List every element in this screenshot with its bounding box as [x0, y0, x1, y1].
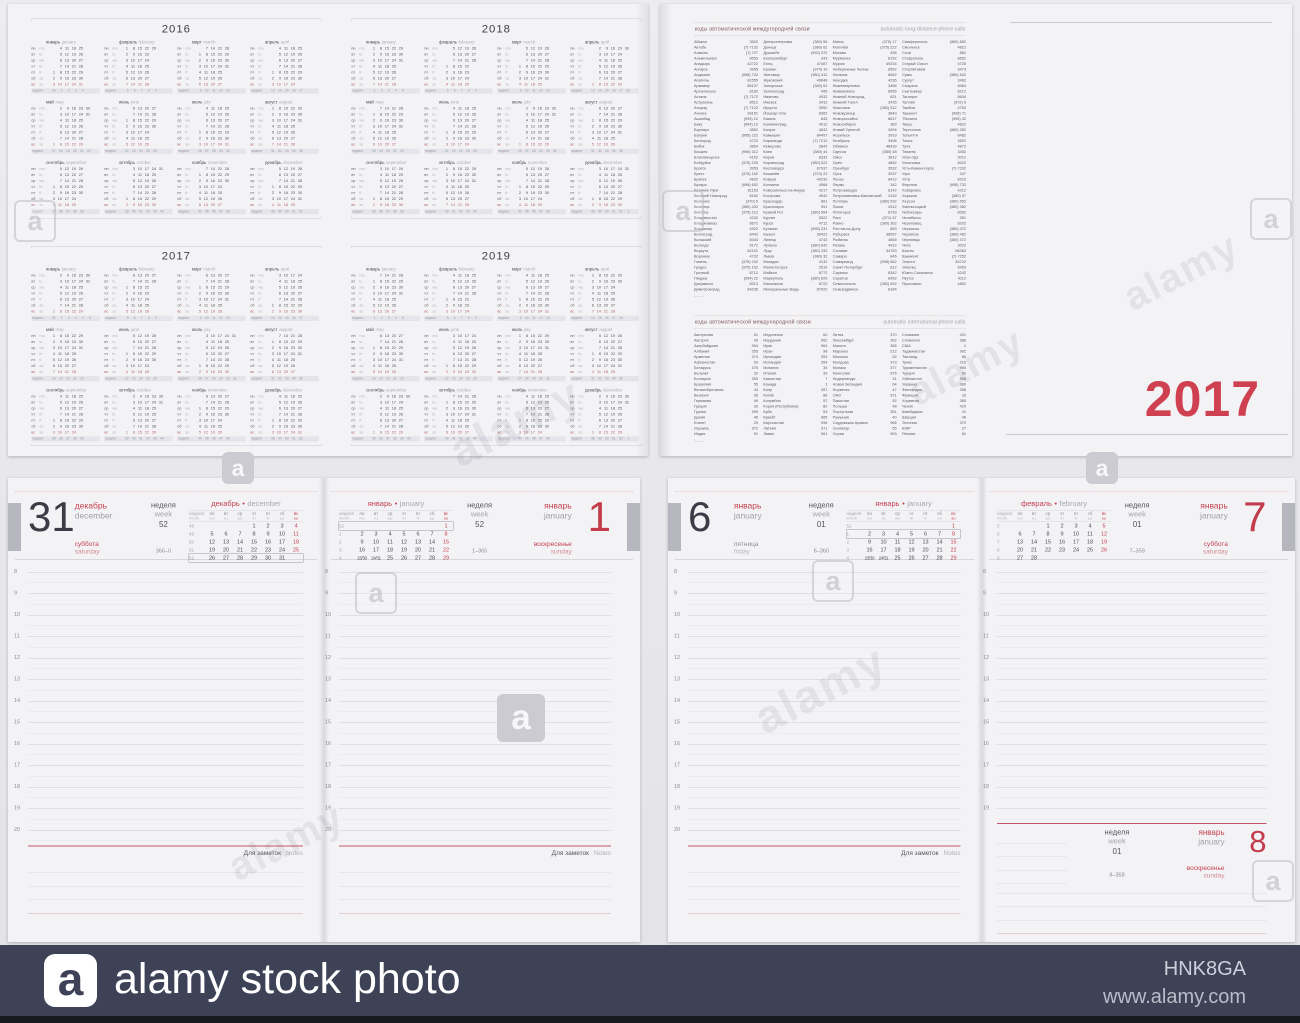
date-cell: 21 [425, 547, 439, 553]
week-block: неделяweek017–359 [1111, 497, 1163, 555]
hour-slot: 20 [688, 823, 961, 845]
hour-line [688, 615, 961, 616]
half-hour-line [339, 626, 611, 627]
hour-label: 11 [325, 633, 336, 639]
header-bottom-rule [331, 560, 633, 561]
date-cell: 25 [383, 555, 397, 561]
header-mini-calendar: декабрь•decemberнеделяweekпнmoвтtuсрweчт… [189, 497, 303, 555]
hour-label: 10 [983, 612, 994, 618]
week-number: 49 [189, 532, 205, 537]
mini-month-title: сентябрьseptember [31, 387, 99, 394]
year-bracket-bottom [351, 216, 641, 218]
date-cell: 11 [1083, 531, 1097, 537]
week-numbers-band: недели56789 [104, 88, 172, 93]
month-name-en: january [734, 511, 796, 521]
date-cell: 16 [863, 547, 877, 553]
mini-calendar-week-row: 820212223242526 [997, 546, 1111, 554]
header-bottom-rule [989, 560, 1289, 561]
notes-line [28, 887, 303, 901]
mini-month-june: июньjuneпнmo5121926втtu6132027срwe714212… [104, 326, 172, 381]
date-cell: 5 [1097, 523, 1111, 529]
date-cell: 23 [261, 547, 275, 553]
week-label-en: week [1111, 510, 1163, 519]
hour-label: 8 [325, 569, 336, 575]
day-of-year: 7–359 [1111, 548, 1163, 555]
weekday-col: птfr [261, 512, 275, 521]
date-cell: 28 [1027, 555, 1041, 561]
year-calendar-2016: 2016январьjanuaryпнmo4111825втtu5121926с… [31, 19, 321, 229]
mini-month-september: сентябрьseptemberпнmo29162330втtu3101724… [351, 387, 419, 442]
date-cell: 6 [219, 531, 233, 537]
hour-slot: 12 [997, 651, 1267, 673]
hour-line [997, 787, 1267, 788]
stock-photo-diary-2017: 2016январьjanuaryпнmo4111825втtu5121926с… [0, 0, 1300, 1023]
hour-slot: 14 [28, 694, 303, 716]
hour-label: 8 [14, 569, 25, 575]
half-hour-line [997, 819, 1267, 820]
mini-month-title: январьjanuary [31, 266, 99, 273]
notes-line [997, 907, 1267, 921]
mini-calendar-week-row: 52262728293031 [189, 554, 303, 562]
half-hour-line [688, 776, 961, 777]
mini-month-may: майmayпнmo6132027втtu7142128срwe18152229… [351, 326, 419, 381]
hour-slot: 9 [339, 587, 611, 609]
year-bracket-bottom [31, 444, 321, 446]
mini-month-march: мартmarchпнmo5121926втtu6132027срwe71421… [497, 39, 565, 94]
half-hour-line [997, 690, 1267, 691]
weekday-row: всsu4111825 [31, 202, 99, 208]
date-cell: 1 [247, 523, 261, 529]
half-hour-line [688, 819, 961, 820]
mini-month-title: июльjuly [177, 99, 245, 106]
mini-month-title: августaugust [250, 99, 318, 106]
mini-month-october: октябрьoctoberпнmo310172431втtu4111825ср… [104, 159, 172, 214]
half-hour-line [688, 604, 961, 605]
weekday-col: втtu [877, 512, 891, 521]
weekday-col: птfr [919, 512, 933, 521]
mini-month-march: мартmarchпнmo4111825втtu5121926срwe61320… [497, 266, 565, 321]
half-hour-line [997, 604, 1267, 605]
yearly-calendars-page: 2016январьjanuaryпнmo4111825втtu5121926с… [8, 4, 648, 456]
week-block: неделяweek52366–0 [138, 497, 189, 555]
bookmark-tab [627, 503, 640, 551]
bookmark-tab [1282, 503, 1295, 551]
notes-line [339, 873, 611, 887]
date-cell: 13 [219, 539, 233, 545]
hour-label: 14 [14, 698, 25, 704]
mini-month-title: октябрьoctober [424, 159, 492, 166]
weekday-row: всsu5121926 [104, 309, 172, 315]
hour-slot: 16 [997, 737, 1267, 759]
date-cell: 7 [1027, 531, 1041, 537]
date-cell: 19 [905, 547, 919, 553]
hour-slot: 17 [997, 759, 1267, 781]
hour-label: 19 [674, 805, 685, 811]
hour-slot: 8 [28, 565, 303, 587]
diary-page-content: 6январьjanuaryпятницаfridayнеделяweek016… [668, 478, 982, 942]
week-numbers-band: недели3132333435 [570, 376, 638, 381]
hour-label: 16 [674, 741, 685, 747]
weekday-row: всsu3101724 [497, 429, 565, 435]
hour-slot: 14 [997, 694, 1267, 716]
week-numbers-band: недели1819202122 [351, 149, 419, 154]
header-mini-calendar: февраль•februaryнеделяweekпнmoвтtuсрweчт… [997, 497, 1111, 555]
hour-line [688, 766, 961, 767]
bookmark-tab [8, 503, 21, 551]
code-entry: Ярославль4852 [902, 281, 966, 287]
weekday-row: всsu7142128 [250, 142, 318, 148]
hour-line [997, 615, 1267, 616]
mini-month-july: июльjulyпнmo310172431втtu4111825срwe5121… [177, 326, 245, 381]
hour-line [339, 723, 611, 724]
hour-slot: 15 [688, 716, 961, 738]
weekday-col: чтth [397, 512, 411, 521]
hour-label: 18 [14, 784, 25, 790]
hour-label: 13 [983, 676, 994, 682]
week-numbers-band: недели48495051521 [570, 209, 638, 214]
month-weekday-block: январьjanuaryсубботаsaturday [1163, 497, 1227, 555]
day-of-year: 8–358 [1084, 872, 1149, 879]
mini-month-title: октябрьoctober [424, 387, 492, 394]
date-cell: 18 [891, 547, 905, 553]
codes-column: Австралия61Австрия43Азербайджан994Албани… [694, 332, 758, 436]
mini-month-november: ноябрьnovemberпнmo6132027втtu7142128срwe… [177, 387, 245, 442]
mini-month-title: апрельapril [570, 39, 638, 46]
week-number: 2 [847, 540, 863, 545]
year-calendars-grid: 2016январьjanuaryпнmo4111825втtu5121926с… [8, 4, 648, 456]
hour-label: 17 [14, 762, 25, 768]
mini-month-title: октябрьoctober [104, 159, 172, 166]
mini-calendar-corner: неделяweek [339, 512, 355, 521]
date-cell: 10 [275, 531, 289, 537]
hour-slot: 11 [997, 630, 1267, 652]
hour-grid: 891011121314151617181920 [324, 560, 640, 845]
date-cell: 24 [275, 547, 289, 553]
date-cell: 17 [1069, 539, 1083, 545]
hour-label: 9 [325, 590, 336, 596]
half-hour-line [28, 712, 303, 713]
week-numbers-band: недели910111213 [497, 316, 565, 321]
date-cell: 7 [425, 531, 439, 537]
mini-month-title: августaugust [570, 326, 638, 333]
half-hour-line [339, 604, 611, 605]
mini-calendar-week-row: 12345678 [339, 530, 453, 538]
weekday-col: сбsa [425, 512, 439, 521]
mini-month-title: июньjune [424, 99, 492, 106]
weekday-row: всsu6132027 [351, 142, 419, 148]
mini-month-may: майmayпнmo29162330втtu310172431срwe41118… [31, 99, 99, 154]
week-block: неделяweek521–365 [453, 497, 506, 555]
week-number: 7 [997, 540, 1013, 545]
notes-label-row: Для заметокNotes [339, 847, 611, 860]
day-of-year: 366–0 [138, 548, 189, 555]
weekday-row: всsu29162330 [351, 202, 419, 208]
half-hour-line [688, 712, 961, 713]
hour-line [997, 701, 1267, 702]
date-cell: 6 [919, 531, 933, 537]
week-numbers-band: недели3132333435 [570, 149, 638, 154]
week-number: 52 [847, 524, 863, 529]
date-cell: 17 [275, 539, 289, 545]
date-cell: 21 [933, 547, 947, 553]
codes-column: Словакия421Словения386США1Таджикистан992… [902, 332, 966, 436]
mini-month-title: сентябрьseptember [351, 387, 419, 394]
mini-month-title: январьjanuary [351, 39, 419, 46]
hour-line [339, 572, 611, 573]
date-cell: 8 [247, 531, 261, 537]
date-cell: 7 [233, 531, 247, 537]
hour-label: 15 [325, 719, 336, 725]
hour-slot: 9 [997, 587, 1267, 609]
hour-slot: 10 [688, 608, 961, 630]
notes-line [688, 887, 961, 901]
weekday-row: всsu4111825 [497, 81, 565, 87]
hour-slot: 18 [28, 780, 303, 802]
week-numbers-band: недели910111213 [177, 316, 245, 321]
hour-line [997, 658, 1267, 659]
hour-line [28, 787, 303, 788]
weekday-col: сбsa [1083, 512, 1097, 521]
week-number: 2 [339, 540, 355, 545]
week-numbers-band: недели353637383940 [351, 436, 419, 441]
year-months-grid: январьjanuaryпнmo7142128втtu18152229срwe… [351, 263, 641, 441]
mini-month-september: сентябрьseptemberпнmo5121926втtu6132027с… [31, 159, 99, 214]
mini-calendar-week-row: 316171819202122 [339, 546, 453, 554]
diary-spread-jan6-jan8: 6январьjanuaryпятницаfridayнеделяweek016… [668, 478, 1295, 942]
week-numbers-band: недели2223242526 [104, 376, 172, 381]
date-cell: 21 [233, 547, 247, 553]
hour-line [997, 723, 1267, 724]
weekday-row: всsu4111825 [570, 369, 638, 375]
hour-label: 18 [674, 784, 685, 790]
hour-line [28, 615, 303, 616]
weekday-row: всsu6132027 [351, 309, 419, 315]
mini-calendar-week-row: 521 [339, 522, 453, 530]
hour-grid: 891011121314151617181920 [668, 560, 982, 845]
mini-month-january: январьjanuaryпнmo4111825втtu5121926срwe6… [31, 39, 99, 94]
month-name-ru: январь [1163, 501, 1227, 511]
date-cell: 12 [397, 539, 411, 545]
header-mini-calendar: январь•januaryнеделяweekпнmoвтtuсрweчтth… [847, 497, 961, 555]
half-hour-line [688, 583, 961, 584]
date-cell: 1 [947, 523, 961, 529]
half-hour-line [28, 841, 303, 842]
notes-line [28, 873, 303, 887]
hour-slot: 10 [28, 608, 303, 630]
header-top-rule [989, 491, 1289, 492]
week-numbers-band: недели4849505152 [250, 436, 318, 441]
mini-month-title: июльjuly [497, 326, 565, 333]
hour-slot: 13 [339, 673, 611, 695]
date-cell: 2 [863, 531, 877, 537]
year-title: 2016 [31, 21, 321, 36]
date-cell: 26 [905, 555, 919, 561]
hour-line [28, 594, 303, 595]
notes-line [688, 873, 961, 887]
mini-month-january: январьjanuaryпнmo18152229втtu29162330срw… [351, 39, 419, 94]
year-bracket-top [351, 246, 641, 248]
mini-month-november: ноябрьnovemberпнmo7142128втtu18152229срw… [177, 159, 245, 214]
weekday-row: всsu5121926 [570, 142, 638, 148]
hour-line [688, 744, 961, 745]
weekday-row: всsu7142128 [31, 369, 99, 375]
hour-line [28, 744, 303, 745]
mini-month-may: майmayпнmo7142128втtu18152229срwe2916233… [351, 99, 419, 154]
hour-label: 16 [325, 741, 336, 747]
hour-line [339, 658, 611, 659]
date-cell: 20 [919, 547, 933, 553]
date-cell: 14 [425, 539, 439, 545]
spacer [734, 521, 796, 540]
diary-page-january-6: 6январьjanuaryпятницаfridayнеделяweek016… [668, 478, 982, 942]
half-hour-line [997, 733, 1267, 734]
date-cell: 3 [877, 531, 891, 537]
mini-month-august: августaugustпнmo5121926втtu6132027срwe71… [570, 326, 638, 381]
hour-slot: 17 [339, 759, 611, 781]
week-numbers-band: недели262728293031 [177, 376, 245, 381]
weekday-row: всsu3101724 [424, 142, 492, 148]
date-cell: 14 [1027, 539, 1041, 545]
hour-label: 10 [14, 612, 25, 618]
notes-line [997, 830, 1067, 844]
week-numbers-band: недели1314151617 [250, 316, 318, 321]
notes-line [997, 857, 1067, 871]
date-cell: 28 [933, 555, 947, 561]
mini-month-february: февральfebruaryпнmo6132027втtu7142128срw… [104, 266, 172, 321]
hour-slot: 18 [339, 780, 611, 802]
hour-line [688, 830, 961, 831]
weekday-row: всsu7142128 [497, 369, 565, 375]
date-cell: 9 [355, 539, 369, 545]
hour-slot: 19 [997, 802, 1267, 824]
date-cell: 22 [439, 547, 453, 553]
hour-grid: 891011121314151617181920 [8, 560, 324, 845]
half-hour-line [28, 733, 303, 734]
date-cell: 27 [219, 555, 233, 561]
weekday-row: всsu310172431 [31, 81, 99, 87]
weekday-row: всsu18152229 [570, 81, 638, 87]
date-cell: 27 [919, 555, 933, 561]
codes-section-1: коды автоматической междугородней связиa… [694, 23, 966, 297]
spacer [1163, 521, 1227, 540]
hour-line [28, 830, 303, 831]
mini-month-title: ноябрьnovember [497, 387, 565, 394]
mini-month-title: июньjune [104, 99, 172, 106]
date-cell: 18 [289, 539, 303, 545]
hour-slot: 16 [688, 737, 961, 759]
week-label-ru: неделя [453, 501, 506, 510]
weekday-col: сбsa [275, 512, 289, 521]
mini-month-october: октябрьoctoberпнmo7142128втtu18152229срw… [424, 387, 492, 442]
date-cell: 4 [383, 531, 397, 537]
date-cell: 4 [1083, 523, 1097, 529]
mini-calendar-week-row: 316171819202122 [847, 546, 961, 554]
year-bracket-bottom [351, 444, 641, 446]
weekday-name-ru: пятница [734, 540, 796, 548]
half-hour-line [688, 626, 961, 627]
mini-calendar-title: декабрь•december [189, 499, 303, 509]
week-numbers-band: недели262728293031 [497, 149, 565, 154]
hour-label: 20 [14, 827, 25, 833]
month-name-en: january [1149, 838, 1224, 848]
mini-month-title: февральfebruary [104, 266, 172, 273]
notes-line [339, 860, 611, 874]
mini-calendar-week-row: 481234 [189, 522, 303, 530]
hour-line [28, 701, 303, 702]
month-name-ru: январь [734, 501, 796, 511]
month-name-en: january [1163, 511, 1227, 521]
hour-line [28, 680, 303, 681]
half-hour-line [688, 690, 961, 691]
year-months-grid: январьjanuaryпнmo18152229втtu29162330срw… [351, 36, 641, 214]
mini-month-june: июньjuneпнmo6132027втtu7142128срwe181522… [104, 99, 172, 154]
mini-month-title: апрельapril [250, 266, 318, 273]
week-numbers-band: недели531234 [31, 88, 99, 93]
year-title: 2019 [351, 248, 641, 263]
mini-month-title: апрельapril [570, 266, 638, 273]
weekday-row: всsu3101724 [250, 81, 318, 87]
month-weekday-block: декабрьdecemberсубботаsaturday [75, 497, 138, 555]
date-cell: 28 [233, 555, 247, 561]
week-numbers-band: недели12345 [351, 88, 419, 93]
mini-month-august: августaugustпнmo18152229втtu29162330срwe… [250, 99, 318, 154]
date-cell: 8 [1041, 531, 1055, 537]
half-hour-line [28, 819, 303, 820]
header-row: январь•januaryнеделяweekпнmoвтtuсрweчтth… [339, 497, 611, 555]
date-cell: 13 [1013, 539, 1027, 545]
mini-month-title: февральfebruary [424, 39, 492, 46]
mini-month-october: октябрьoctoberпнmo29162330втtu310172431с… [104, 387, 172, 442]
hour-label: 16 [983, 741, 994, 747]
week-numbers-band: недели12345 [351, 316, 419, 321]
header-top-rule [675, 491, 975, 492]
alamy-brand-text: alamy stock photo [114, 955, 461, 1004]
header-top-rule [15, 491, 317, 492]
hour-label: 11 [983, 633, 994, 639]
weekday-col: пнmo [205, 512, 219, 521]
codes-column: Симферополь(380) 652Смоленск4812Сочи862С… [902, 39, 966, 292]
hour-slot: 19 [28, 802, 303, 824]
date-cell: 19 [205, 547, 219, 553]
hour-label: 17 [325, 762, 336, 768]
hour-slot: 14 [688, 694, 961, 716]
week-number: 52 [339, 524, 355, 529]
week-numbers-band: недели3536373839 [31, 436, 99, 441]
mini-month-july: июльjulyпнmo29162330втtu310172431срwe411… [497, 99, 565, 154]
week-label-en: week [453, 510, 506, 519]
hour-label: 12 [14, 655, 25, 661]
hour-line [28, 723, 303, 724]
day-number: 1 [572, 497, 611, 555]
day-header: январь•januaryнеделяweekпнmoвтtuсрweчтth… [324, 478, 640, 560]
hour-label: 15 [674, 719, 685, 725]
week-label-ru: неделя [1111, 501, 1163, 510]
mini-month-title: майmay [351, 326, 419, 333]
hour-line [997, 594, 1267, 595]
half-hour-line [339, 841, 611, 842]
spacer [453, 530, 506, 548]
mini-calendar-weekday-header: неделяweekпнmoвтtuсрweчтthптfrсбsaвсsu [339, 510, 453, 522]
mini-month-title: июльjuly [177, 326, 245, 333]
mini-calendar-week-row: 29101112131415 [339, 538, 453, 546]
hour-slot: 14 [339, 694, 611, 716]
bottom-rule [1006, 434, 1288, 435]
weekday-row: всsu18152229 [570, 429, 638, 435]
half-hour-line [688, 798, 961, 799]
codes-section-end-tick [694, 294, 704, 297]
codes-section-header: коды автоматической междугородней связиa… [694, 23, 966, 35]
hour-line [688, 701, 961, 702]
